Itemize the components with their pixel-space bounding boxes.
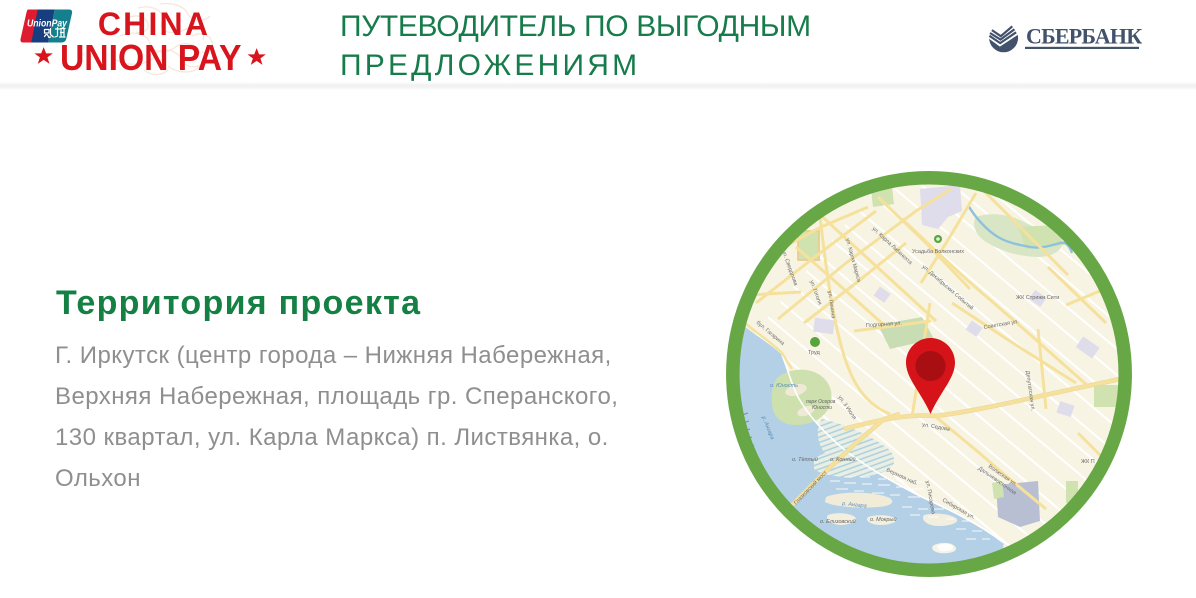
svg-text:Усадьба Волконских: Усадьба Волконских [912, 249, 964, 255]
svg-text:ЖК Стрижи Сити: ЖК Стрижи Сити [1016, 295, 1059, 301]
svg-text:Труд: Труд [808, 350, 821, 356]
svg-text:о. Тёплый: о. Тёплый [792, 456, 818, 463]
svg-text:о. Юность: о. Юность [770, 383, 798, 389]
svg-text:СБЕРБАНК: СБЕРБАНК [1026, 24, 1142, 49]
svg-text:о. Елизовский: о. Елизовский [820, 518, 856, 525]
svg-text:UnionPay: UnionPay [27, 19, 67, 30]
svg-text:ЖК П: ЖК П [1081, 459, 1095, 465]
svg-text:Юности: Юности [812, 405, 832, 411]
svg-text:о. Мокрый: о. Мокрый [870, 516, 897, 523]
svg-text:о. Конный: о. Конный [830, 456, 856, 463]
